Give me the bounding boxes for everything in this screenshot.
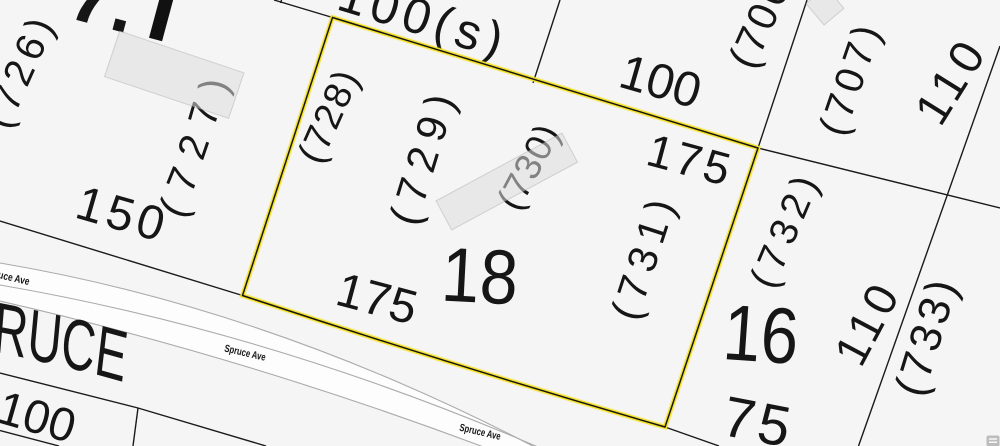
svg-text:18: 18 [439,232,520,322]
svg-text:16: 16 [720,287,801,381]
